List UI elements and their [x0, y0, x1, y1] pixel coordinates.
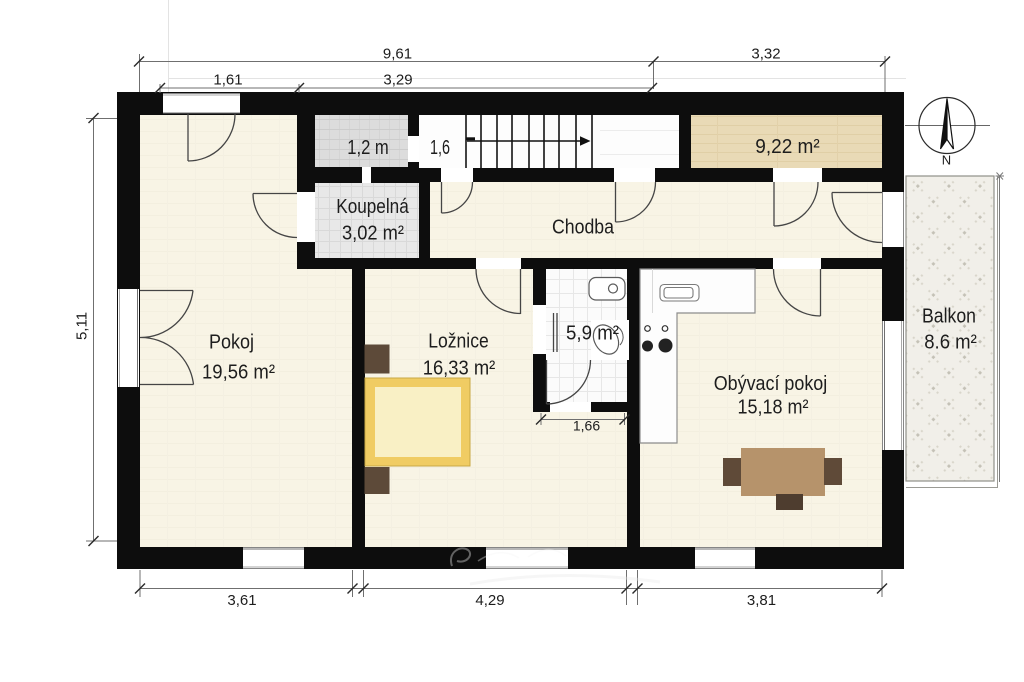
svg-text:Ložnice: Ložnice [428, 331, 489, 353]
svg-text:Balkon: Balkon [922, 306, 976, 328]
svg-text:Koupelná: Koupelná [336, 196, 409, 218]
svg-text:5,9 m²: 5,9 m² [566, 323, 619, 345]
svg-text:9,61: 9,61 [383, 46, 412, 63]
svg-text:8.6 m²: 8.6 m² [924, 332, 977, 354]
svg-text:4,29: 4,29 [475, 592, 504, 609]
svg-text:15,18 m²: 15,18 m² [738, 397, 809, 419]
svg-text:5,11: 5,11 [74, 312, 91, 340]
svg-text:1,2 m: 1,2 m [347, 137, 389, 159]
svg-text:16,33 m²: 16,33 m² [423, 358, 496, 380]
svg-text:1,61: 1,61 [213, 72, 242, 89]
svg-text:Pokoj: Pokoj [209, 332, 254, 354]
svg-text:1,6: 1,6 [430, 137, 450, 159]
svg-text:9,22 m²: 9,22 m² [755, 136, 820, 158]
svg-text:N: N [942, 153, 951, 168]
svg-text:Chodba: Chodba [552, 217, 615, 239]
svg-text:3,81: 3,81 [747, 592, 776, 609]
svg-text:19,56 m²: 19,56 m² [202, 362, 275, 384]
svg-text:3,02 m²: 3,02 m² [342, 223, 404, 245]
svg-text:3,61: 3,61 [227, 592, 256, 609]
svg-text:3,29: 3,29 [383, 72, 412, 89]
svg-text:Obývací pokoj: Obývací pokoj [714, 373, 828, 395]
svg-text:1,66: 1,66 [573, 418, 600, 434]
svg-text:3,32: 3,32 [751, 46, 780, 63]
